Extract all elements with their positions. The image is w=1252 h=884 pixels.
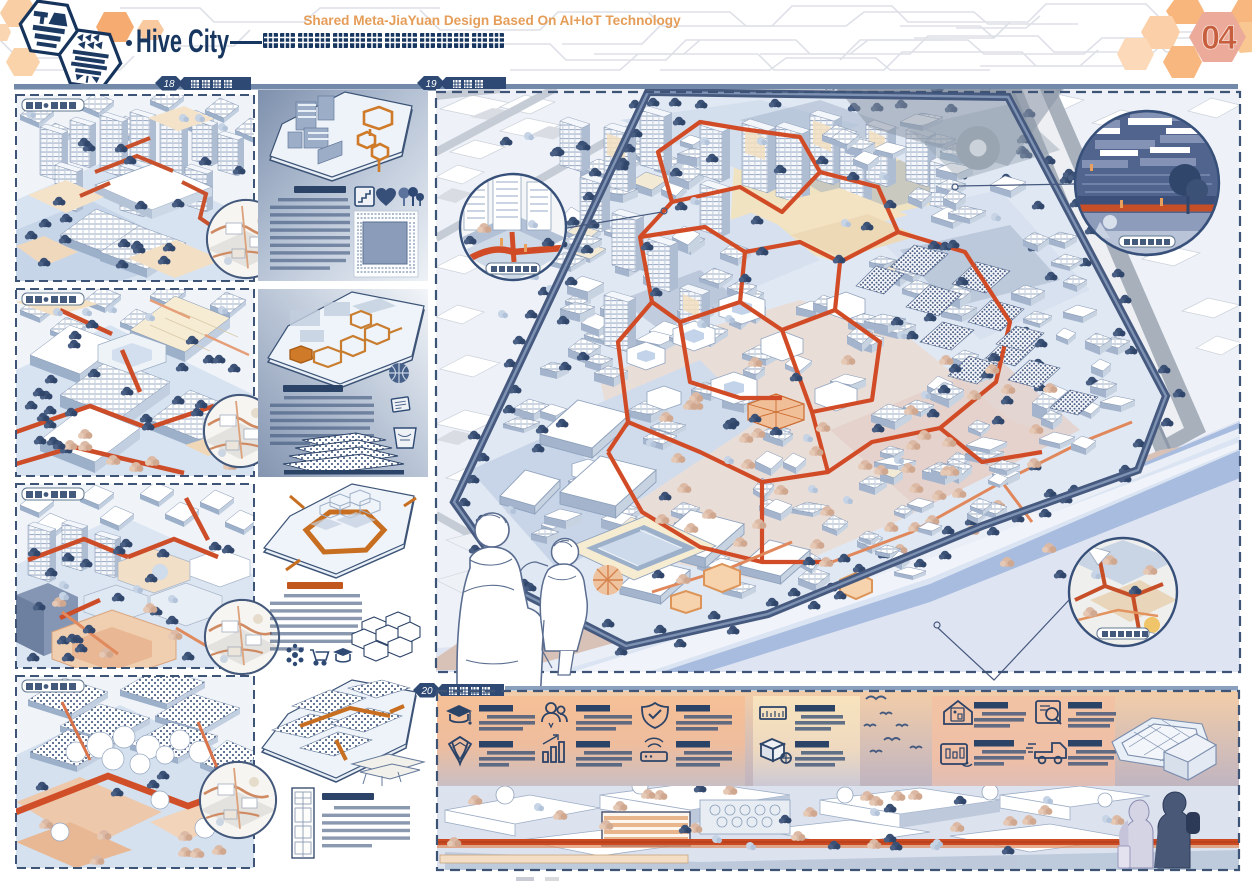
svg-text:04: 04 [1201, 19, 1237, 57]
svg-text:19: 19 [425, 79, 437, 90]
svg-text:Shared Meta-JiaYuan Design Bas: Shared Meta-JiaYuan Design Based On AI+I… [303, 13, 681, 28]
svg-text:18: 18 [163, 79, 175, 90]
svg-text:20: 20 [420, 686, 433, 697]
svg-text:Hive City: Hive City [136, 23, 230, 59]
